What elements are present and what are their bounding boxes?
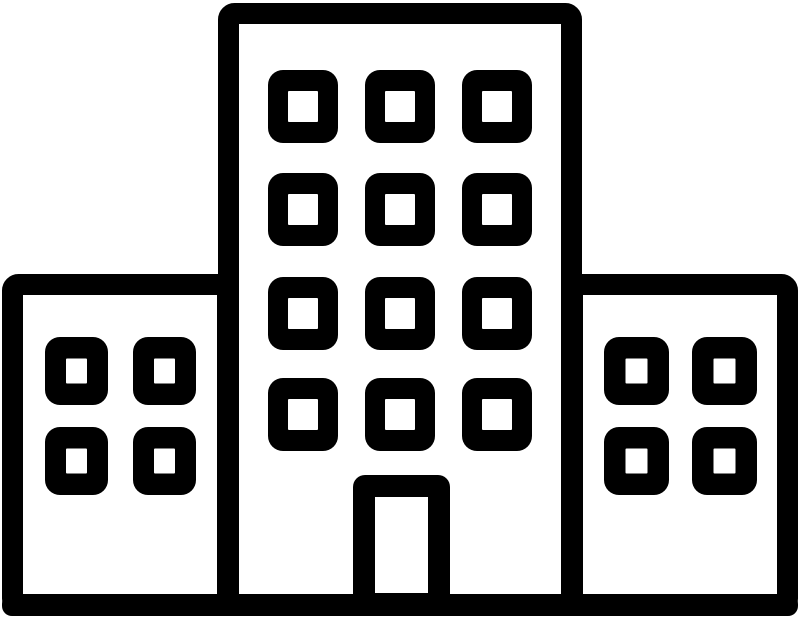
center-tower-window-pane: [385, 298, 415, 329]
center-tower-window-pane: [385, 91, 415, 122]
door-pane: [375, 497, 428, 593]
left-wing-window-pane: [66, 449, 87, 474]
right-wing-window-pane: [714, 449, 736, 474]
left-wing-window-pane: [154, 359, 175, 384]
center-tower-window-pane: [482, 91, 512, 122]
center-tower-window-pane: [288, 298, 318, 329]
center-tower-window-pane: [482, 298, 512, 329]
center-tower-window-pane: [385, 399, 415, 430]
center-tower-window-pane: [482, 194, 512, 225]
icon-canvas: [0, 0, 800, 618]
center-tower-window-pane: [288, 91, 318, 122]
center-tower-window-pane: [482, 399, 512, 430]
office-buildings-icon: [0, 0, 800, 618]
left-wing-window-pane: [66, 359, 87, 384]
center-tower-window-pane: [288, 399, 318, 430]
left-wing-window-pane: [154, 449, 175, 474]
right-wing-window-pane: [714, 359, 736, 384]
center-tower-window-pane: [288, 194, 318, 225]
right-wing-window-pane: [626, 359, 648, 384]
center-tower-window-pane: [385, 194, 415, 225]
right-wing-window-pane: [626, 449, 648, 474]
